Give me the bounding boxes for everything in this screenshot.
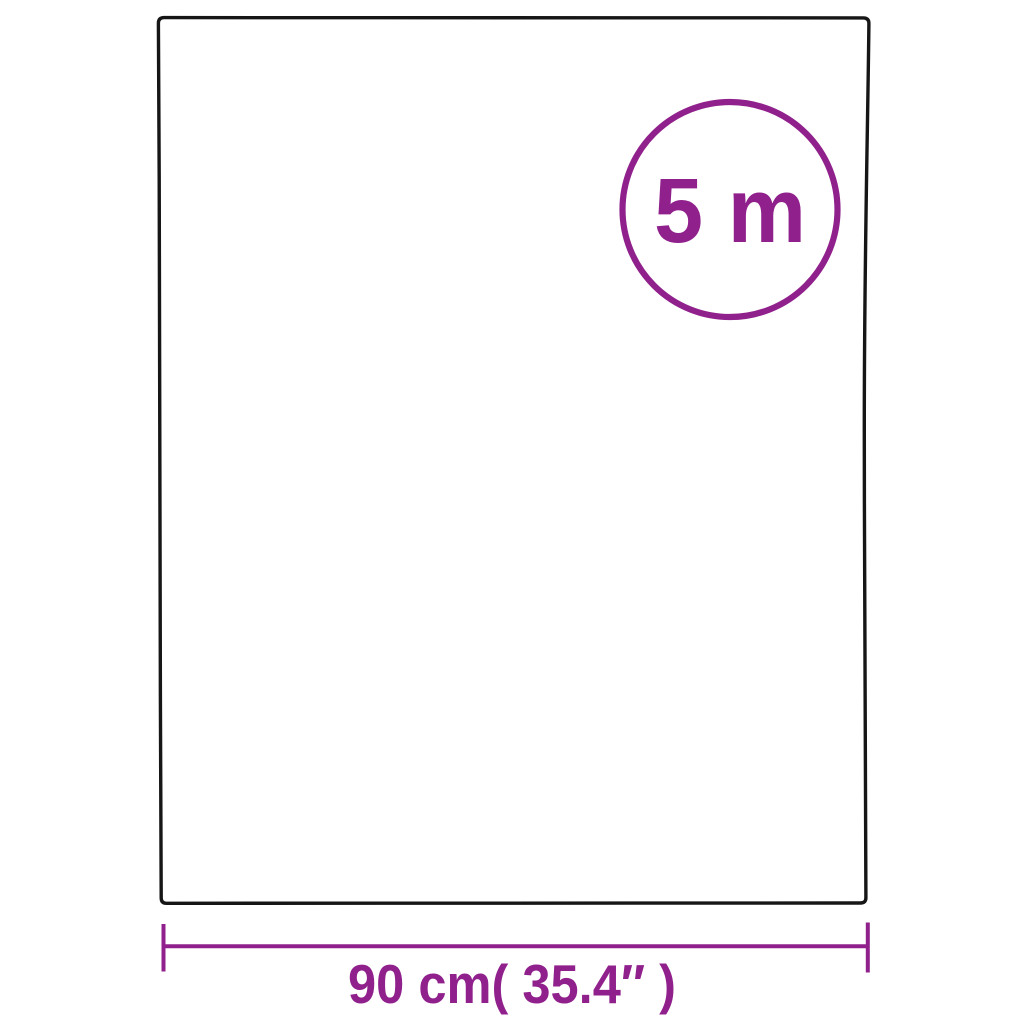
product-dimension-diagram: 5 m 90 cm( 35.4″ ) (0, 0, 1024, 1024)
width-dimension-label: 90 cm( 35.4″ ) (348, 953, 676, 1015)
diagram-canvas: 5 m 90 cm( 35.4″ ) (0, 0, 1024, 1024)
length-badge-label: 5 m (654, 160, 806, 262)
